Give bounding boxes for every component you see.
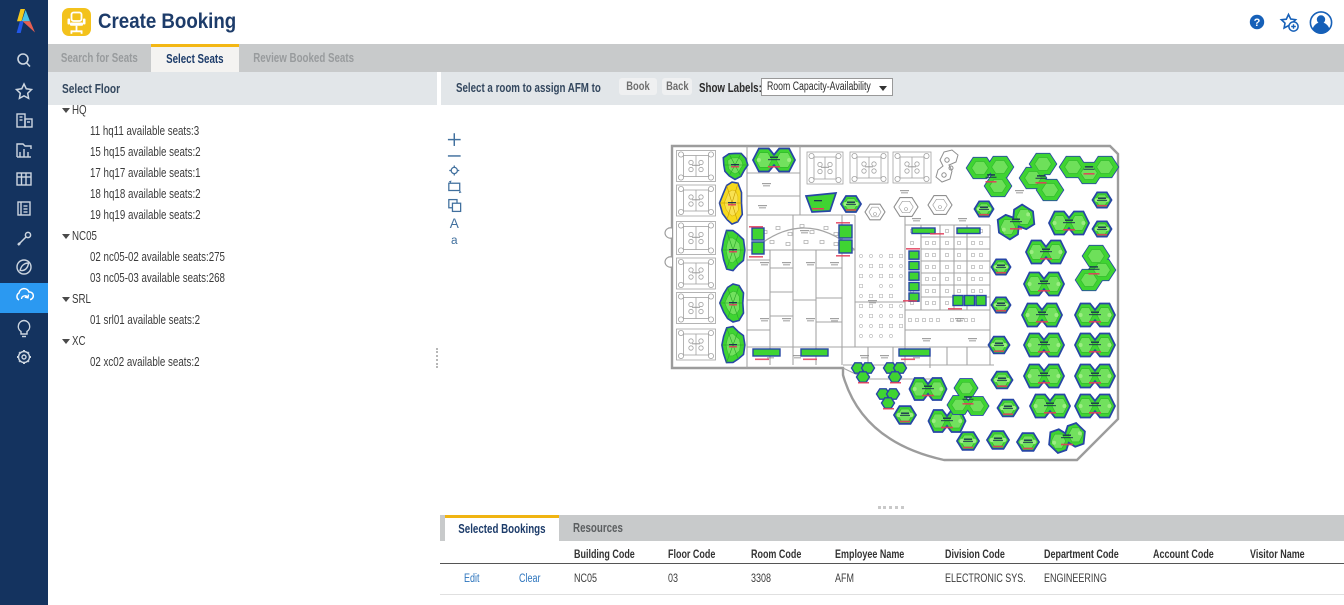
svg-text:?: ? [1254, 17, 1261, 29]
